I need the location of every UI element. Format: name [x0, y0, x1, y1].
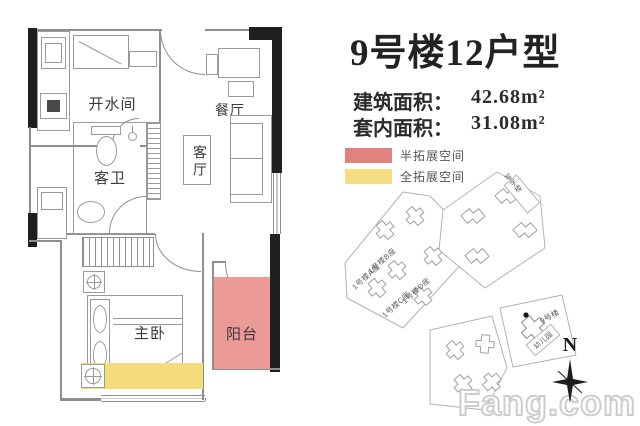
shower-head	[128, 132, 137, 141]
page-title: 9号楼12户型	[350, 22, 620, 76]
sofa-seat	[230, 123, 263, 195]
pillow	[93, 305, 107, 333]
wall-black	[272, 27, 282, 173]
entry-door-arc	[160, 30, 205, 75]
compass: N	[548, 334, 592, 410]
room-label-kitchen: 开水间	[70, 93, 155, 114]
ac-unit	[81, 364, 105, 388]
kitchen-cabinet	[129, 51, 157, 67]
wall	[60, 240, 62, 400]
shower-stem	[132, 126, 133, 133]
spec-value: 42.68m²	[471, 86, 546, 115]
dining-chair	[228, 81, 254, 97]
floor-plan: 开水间 餐厅 客卫 客厅 主卧	[25, 15, 317, 421]
kitchen-sink-basin	[45, 43, 62, 63]
toilet-tank	[91, 126, 121, 135]
window	[273, 173, 281, 234]
wall	[212, 261, 226, 263]
duct-shaft	[147, 122, 161, 200]
laundry-unit-inner	[41, 192, 63, 210]
compass-north-label: N	[548, 334, 592, 357]
spec-label: 建筑面积：	[353, 86, 453, 115]
watermark-fang-logo: Fang.com	[458, 382, 636, 424]
dining-table	[218, 48, 260, 78]
wall	[29, 240, 62, 242]
bathroom-sink	[77, 201, 105, 223]
page: 开水间 餐厅 客卫 客厅 主卧	[0, 0, 640, 426]
room-label-balcony: 阳台	[214, 323, 270, 344]
spec-label: 套内面积：	[353, 112, 453, 141]
toilet-bowl	[96, 136, 117, 166]
wall-black	[28, 28, 37, 128]
room-label-living: 客厅	[183, 135, 211, 185]
room-label-bedroom: 主卧	[115, 322, 185, 343]
dining-chair	[206, 54, 218, 75]
building9-marker-dot	[523, 312, 528, 317]
window	[101, 395, 205, 402]
spec-inner-area: 套内面积： 31.08m²	[353, 112, 623, 141]
legend-swatch-pink	[345, 148, 392, 163]
legend-label: 半拓展空间	[400, 147, 465, 164]
sofa-cushion-line	[231, 158, 263, 159]
bedroom-door-arc	[155, 234, 201, 272]
legend-item: 半拓展空间	[345, 147, 465, 163]
wardrobe	[82, 237, 154, 267]
blanket-line	[113, 318, 182, 319]
wall	[205, 29, 255, 31]
spec-building-area: 建筑面积： 42.68m²	[353, 86, 623, 115]
compass-rose-icon	[550, 357, 590, 405]
spec-value: 31.08m²	[471, 112, 546, 141]
ac-unit	[83, 271, 105, 293]
room-label-bathroom: 客卫	[80, 167, 140, 188]
stove-burner	[47, 100, 60, 112]
wall-black	[270, 234, 280, 372]
